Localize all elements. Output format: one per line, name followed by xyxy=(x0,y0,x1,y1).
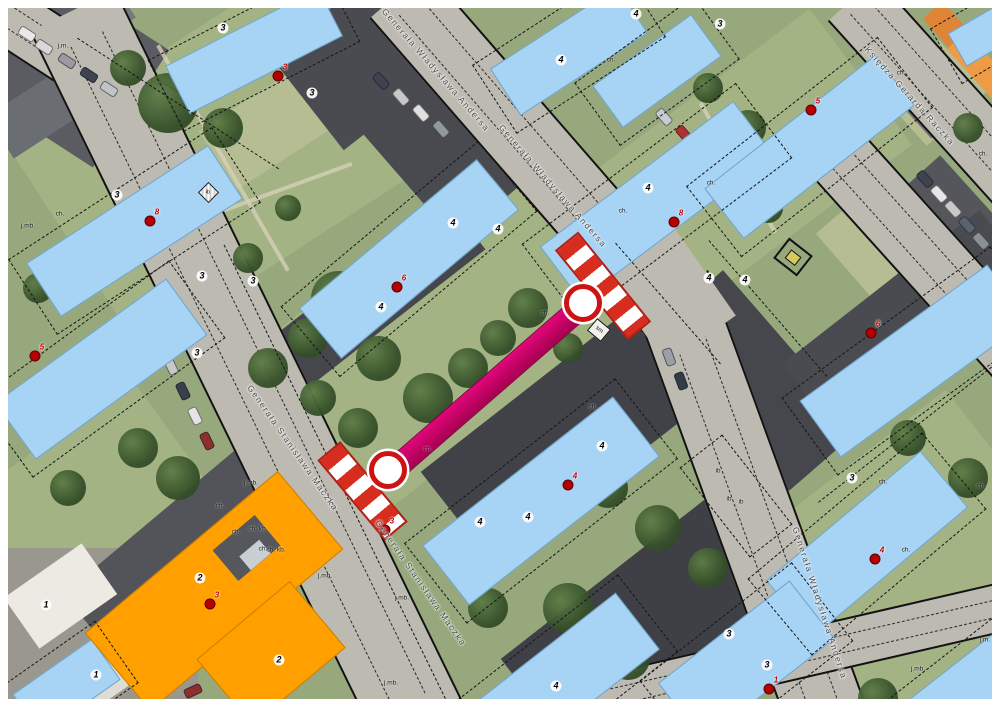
parcel-number: 4 xyxy=(492,224,503,235)
aerial-map: smib ibibibGenerała Władysława AndersaGe… xyxy=(8,8,992,699)
tree xyxy=(688,548,728,588)
map-abbreviation-label: ch. xyxy=(589,404,598,411)
parcel-number: 3 xyxy=(714,19,725,30)
survey-point-number: 4 xyxy=(880,546,884,555)
map-abbreviation-label: j.m. xyxy=(58,43,68,50)
ib-label: ib xyxy=(715,468,720,475)
map-abbreviation-label: j.mb. xyxy=(384,680,398,687)
parcel-number: 3 xyxy=(217,23,228,34)
car xyxy=(187,406,204,427)
parcel-number: 4 xyxy=(474,517,485,528)
tree xyxy=(118,428,158,468)
survey-point-dot xyxy=(870,554,881,565)
map-abbreviation-label: ch. xyxy=(56,211,65,218)
ib-label: ib xyxy=(726,496,731,503)
parcel-number: 4 xyxy=(703,273,714,284)
survey-point-dot xyxy=(145,216,156,227)
no-entry-sign-icon xyxy=(564,284,602,322)
survey-point-number: 3 xyxy=(390,517,394,526)
survey-point-dot xyxy=(392,282,403,293)
parcel-number: 3 xyxy=(196,271,207,282)
plan-screenshot: smib ibibibGenerała Władysława AndersaGe… xyxy=(0,0,1000,707)
map-abbreviation-label: j.m. xyxy=(980,637,990,644)
tree xyxy=(635,505,681,551)
car xyxy=(199,431,216,452)
survey-point-number: 1 xyxy=(774,676,778,685)
survey-point-number: 4 xyxy=(573,472,577,481)
map-abbreviation-label: ch. xyxy=(619,208,628,215)
ib-label: ib xyxy=(738,499,743,506)
parcel-number: 3 xyxy=(761,660,772,671)
parcel-number: 3 xyxy=(306,88,317,99)
tree xyxy=(156,456,200,500)
parcel-number: 3 xyxy=(191,348,202,359)
survey-point-number: 5 xyxy=(816,97,820,106)
survey-point-number: 3 xyxy=(283,63,287,72)
map-abbreviation-label: ch. xyxy=(424,446,433,453)
parcel-number: 3 xyxy=(846,473,857,484)
survey-point-dot xyxy=(30,351,41,362)
map-abbreviation-label: j.mb. xyxy=(318,573,332,580)
parcel-number: 4 xyxy=(739,275,750,286)
map-abbreviation-label: ch. kb. xyxy=(248,526,267,533)
no-entry-sign-icon xyxy=(369,451,407,489)
survey-point-dot xyxy=(205,599,216,610)
survey-point-number: 8 xyxy=(155,208,159,217)
survey-point-number: 6 xyxy=(402,274,406,283)
survey-point-number: 6 xyxy=(876,320,880,329)
tree xyxy=(110,50,146,86)
map-abbreviation-label: ch. xyxy=(977,483,986,490)
car xyxy=(175,381,192,402)
survey-point-number: 5 xyxy=(40,343,44,352)
tree xyxy=(338,408,378,448)
parcel-number: 4 xyxy=(642,183,653,194)
tree xyxy=(233,243,263,273)
parcel-number: 2 xyxy=(194,573,205,584)
parcel-number: 1 xyxy=(40,600,51,611)
survey-point-dot xyxy=(563,480,574,491)
tree xyxy=(275,195,301,221)
ib-diamond-label: ib xyxy=(206,190,210,196)
parcel-number: 4 xyxy=(555,55,566,66)
map-abbreviation-label: j.mb. xyxy=(21,223,35,230)
tree xyxy=(248,348,288,388)
parcel-number: 3 xyxy=(247,276,258,287)
map-abbreviation-label: ch. kb. xyxy=(266,547,285,554)
survey-point-dot xyxy=(806,105,817,116)
parcel-number: 4 xyxy=(375,302,386,313)
map-abbreviation-label: ch. xyxy=(707,180,716,187)
map-abbreviation-label: ch. xyxy=(541,310,550,317)
survey-point-dot xyxy=(669,217,680,228)
survey-point-dot xyxy=(764,684,775,695)
map-abbreviation-label: ch. xyxy=(607,57,616,64)
tree xyxy=(953,113,983,143)
survey-point-dot xyxy=(273,71,284,82)
parcel-number: 4 xyxy=(447,218,458,229)
survey-point-number: 8 xyxy=(679,209,683,218)
map-abbreviation-label: ch. xyxy=(979,151,988,158)
map-abbreviation-label: j.mb. xyxy=(244,480,258,487)
transformer-inner xyxy=(784,249,801,266)
parcel-number: 1 xyxy=(90,670,101,681)
tree xyxy=(508,288,548,328)
tree xyxy=(50,470,86,506)
map-abbreviation-label: ch. xyxy=(232,529,241,536)
parcel-number: 2 xyxy=(273,655,284,666)
map-abbreviation-label: j.mb. xyxy=(911,666,925,673)
parcel-number: 4 xyxy=(550,681,561,692)
parcel-number: 3 xyxy=(723,629,734,640)
map-abbreviation-label: ch. xyxy=(902,547,911,554)
survey-point-dot xyxy=(866,328,877,339)
parcel-number: 4 xyxy=(630,9,641,20)
parcel-number: 4 xyxy=(596,441,607,452)
map-abbreviation-label: ch. xyxy=(216,503,225,510)
map-abbreviation-label: j.mb. xyxy=(395,595,409,602)
map-abbreviation-label: ch. xyxy=(879,479,888,486)
parcel-number: 3 xyxy=(111,190,122,201)
survey-point-number: 3 xyxy=(215,591,219,600)
parcel-number: 4 xyxy=(522,512,533,523)
